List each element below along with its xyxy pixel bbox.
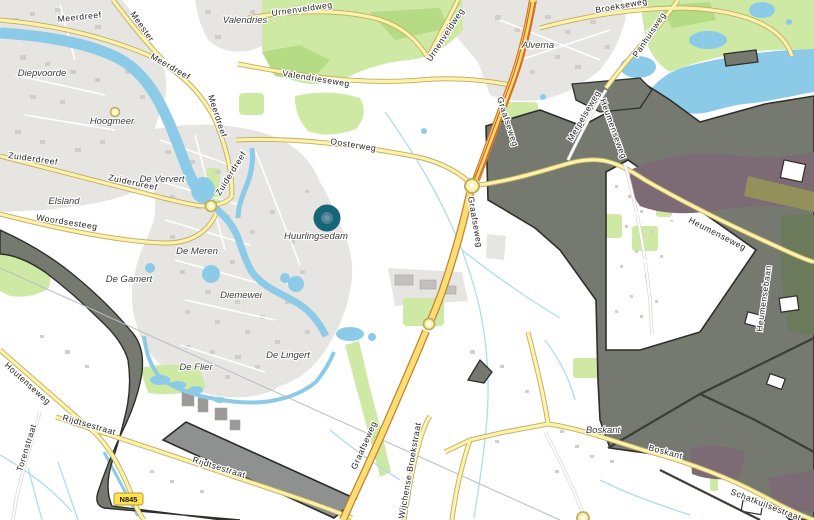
place-label: Alverna <box>521 40 554 51</box>
place-label: Elsland <box>48 196 80 207</box>
place-label: De Ververt <box>139 174 184 185</box>
place-label: De Flier <box>179 362 213 373</box>
road-label: Oosterweg <box>330 136 378 153</box>
place-label: Diepvoorde <box>18 68 67 79</box>
road-label: Rijdtsestraat <box>61 412 117 437</box>
road-label: Graafseweg <box>466 196 485 249</box>
n845-road-shield: N845 <box>114 493 143 505</box>
place-label: Boskant <box>586 425 621 436</box>
place-label: De Lingert <box>266 350 310 361</box>
place-label: Huurlingsedam <box>284 231 348 242</box>
location-marker[interactable] <box>314 205 341 232</box>
road-label: Wijchense Broekstraat <box>396 421 423 519</box>
place-label: De Gamert <box>106 274 153 285</box>
map-base-layer: Meerdreef Meerdreef Meerdreef Meester Ur… <box>0 0 814 520</box>
place-label: De Meren <box>176 246 218 257</box>
place-label: Valendries <box>223 15 268 26</box>
place-label: Diemewei <box>220 290 263 301</box>
road-label: Houtenseweg <box>3 360 53 407</box>
road-shield-text: N845 <box>120 495 138 504</box>
place-label: Hoogmeer <box>90 116 135 127</box>
map-canvas[interactable]: Meerdreef Meerdreef Meerdreef Meester Ur… <box>0 0 814 520</box>
